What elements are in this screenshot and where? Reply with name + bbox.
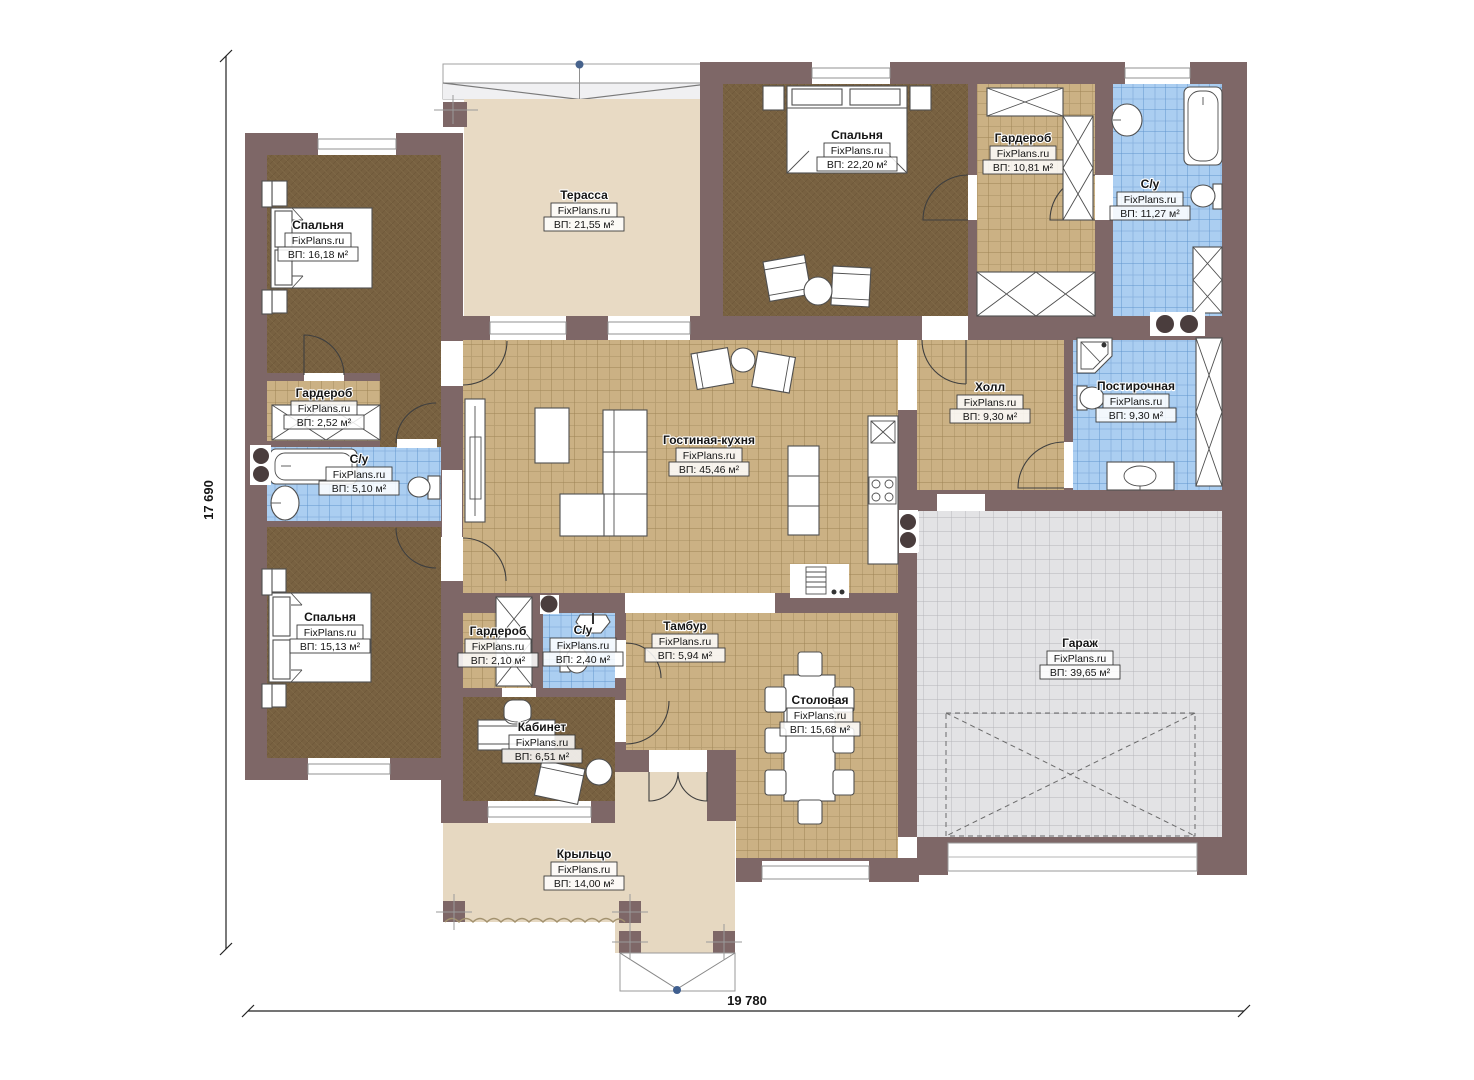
svg-text:ВП: 5,10 м²: ВП: 5,10 м² xyxy=(332,483,387,495)
svg-text:С/у: С/у xyxy=(350,452,369,466)
svg-text:FixPlans.ru: FixPlans.ru xyxy=(304,627,357,639)
svg-text:Столовая: Столовая xyxy=(791,693,848,707)
svg-text:ВП: 45,46 м²: ВП: 45,46 м² xyxy=(679,464,740,476)
svg-text:Терасса: Терасса xyxy=(560,188,608,202)
svg-text:19 780: 19 780 xyxy=(727,993,767,1008)
svg-text:ВП: 11,27 м²: ВП: 11,27 м² xyxy=(1120,208,1180,220)
svg-text:Постирочная: Постирочная xyxy=(1097,379,1175,393)
svg-text:ВП: 2,40 м²: ВП: 2,40 м² xyxy=(556,654,611,666)
svg-text:FixPlans.ru: FixPlans.ru xyxy=(558,205,611,217)
svg-text:FixPlans.ru: FixPlans.ru xyxy=(333,469,386,481)
svg-text:ВП: 21,55 м²: ВП: 21,55 м² xyxy=(554,219,615,231)
svg-text:FixPlans.ru: FixPlans.ru xyxy=(1124,194,1177,206)
svg-text:17 690: 17 690 xyxy=(201,480,216,520)
svg-text:ВП: 22,20 м²: ВП: 22,20 м² xyxy=(827,159,888,171)
svg-text:ВП: 5,94 м²: ВП: 5,94 м² xyxy=(658,650,713,662)
svg-text:FixPlans.ru: FixPlans.ru xyxy=(659,636,712,648)
svg-text:Кабинет: Кабинет xyxy=(518,720,567,734)
svg-text:ВП: 9,30 м²: ВП: 9,30 м² xyxy=(963,411,1018,423)
svg-text:FixPlans.ru: FixPlans.ru xyxy=(557,640,610,652)
svg-text:Гардероб: Гардероб xyxy=(995,131,1052,145)
svg-text:Гардероб: Гардероб xyxy=(470,624,527,638)
svg-text:С/у: С/у xyxy=(574,623,593,637)
svg-text:Спальня: Спальня xyxy=(304,610,356,624)
svg-text:ВП: 39,65 м²: ВП: 39,65 м² xyxy=(1050,667,1111,679)
svg-text:FixPlans.ru: FixPlans.ru xyxy=(831,145,884,157)
svg-text:ВП: 15,68 м²: ВП: 15,68 м² xyxy=(790,724,851,736)
svg-text:FixPlans.ru: FixPlans.ru xyxy=(558,864,611,876)
svg-text:Крыльцо: Крыльцо xyxy=(557,847,612,861)
svg-text:ВП: 15,13 м²: ВП: 15,13 м² xyxy=(300,641,361,653)
svg-text:ВП: 16,18 м²: ВП: 16,18 м² xyxy=(288,249,349,261)
svg-text:ВП: 9,30 м²: ВП: 9,30 м² xyxy=(1109,410,1164,422)
svg-text:Гараж: Гараж xyxy=(1062,636,1098,650)
svg-text:FixPlans.ru: FixPlans.ru xyxy=(292,235,345,247)
svg-text:FixPlans.ru: FixPlans.ru xyxy=(516,737,569,749)
svg-text:FixPlans.ru: FixPlans.ru xyxy=(1054,653,1107,665)
svg-text:FixPlans.ru: FixPlans.ru xyxy=(472,641,525,653)
svg-text:ВП: 6,51 м²: ВП: 6,51 м² xyxy=(515,751,570,763)
svg-text:FixPlans.ru: FixPlans.ru xyxy=(683,450,736,462)
svg-text:Гардероб: Гардероб xyxy=(296,386,353,400)
svg-text:Спальня: Спальня xyxy=(831,128,883,142)
svg-text:Спальня: Спальня xyxy=(292,218,344,232)
svg-text:ВП: 10,81 м²: ВП: 10,81 м² xyxy=(993,162,1054,174)
svg-text:ВП: 2,52 м²: ВП: 2,52 м² xyxy=(297,417,352,429)
svg-text:ВП: 14,00 м²: ВП: 14,00 м² xyxy=(554,878,615,890)
svg-text:Холл: Холл xyxy=(975,380,1005,394)
svg-text:ВП: 2,10 м²: ВП: 2,10 м² xyxy=(471,655,526,667)
svg-text:Тамбур: Тамбур xyxy=(663,619,707,633)
svg-text:Гостиная-кухня: Гостиная-кухня xyxy=(663,433,755,447)
svg-text:FixPlans.ru: FixPlans.ru xyxy=(298,403,351,415)
svg-text:FixPlans.ru: FixPlans.ru xyxy=(997,148,1050,160)
svg-text:FixPlans.ru: FixPlans.ru xyxy=(964,397,1017,409)
svg-text:С/у: С/у xyxy=(1141,177,1160,191)
svg-text:FixPlans.ru: FixPlans.ru xyxy=(794,710,847,722)
svg-text:FixPlans.ru: FixPlans.ru xyxy=(1110,396,1163,408)
